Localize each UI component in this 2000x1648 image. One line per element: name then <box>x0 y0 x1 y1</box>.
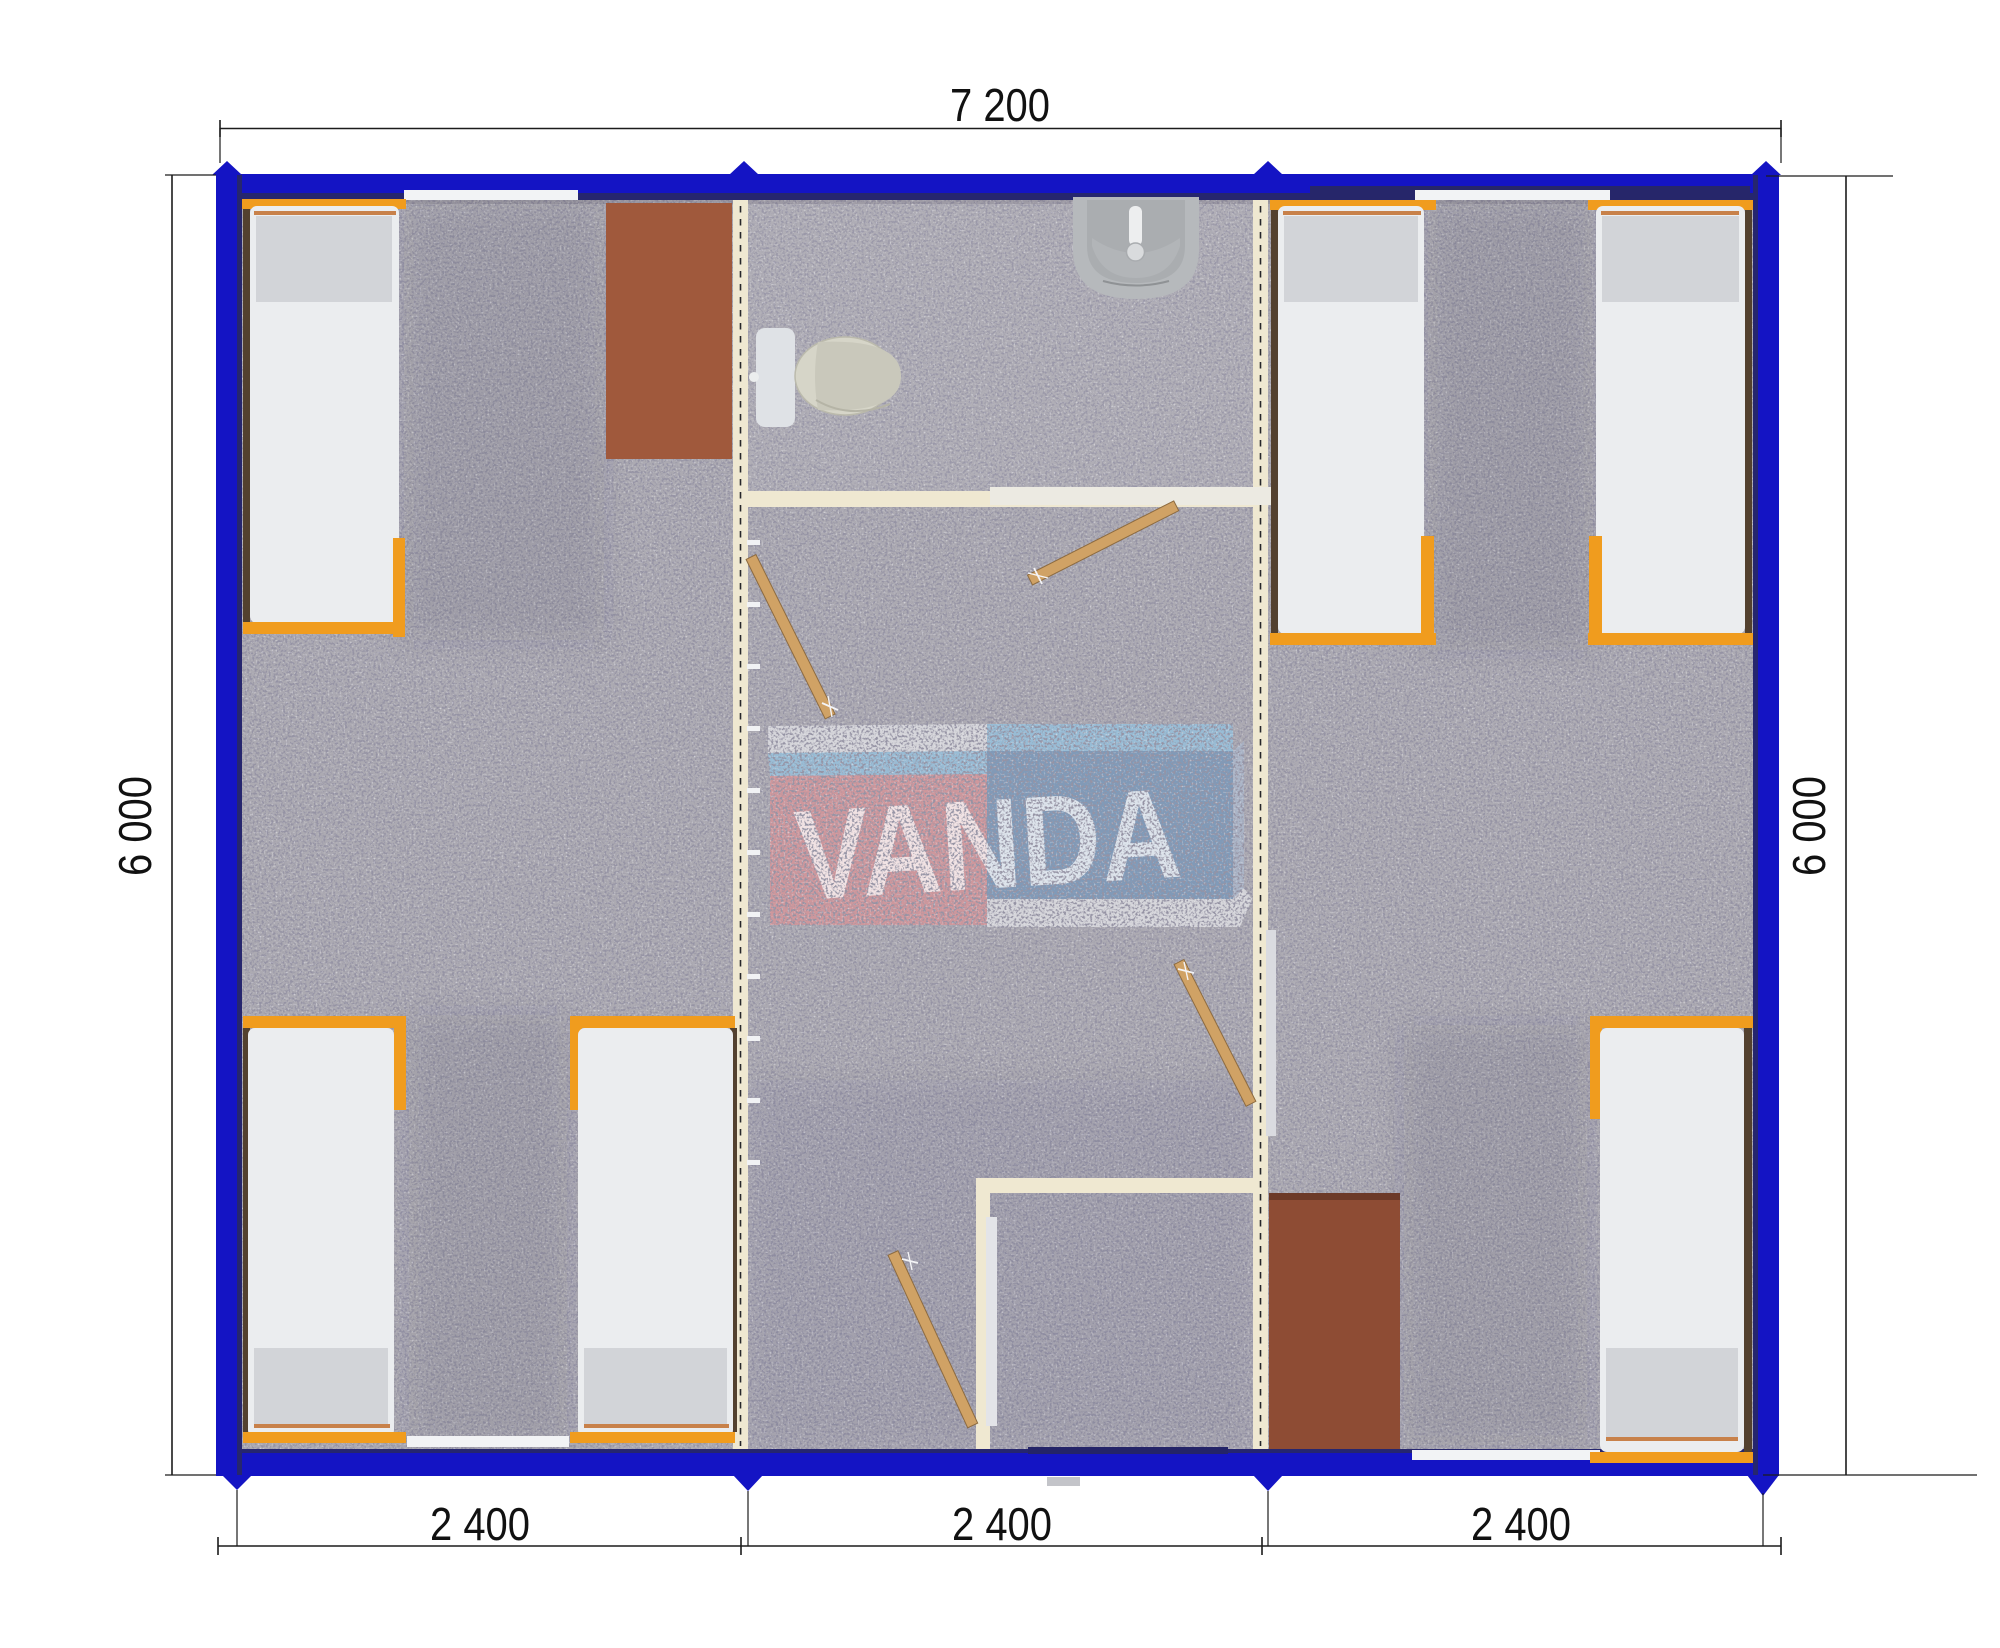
svg-text:2 400: 2 400 <box>952 1498 1052 1550</box>
svg-text:6 000: 6 000 <box>1783 776 1835 876</box>
svg-text:2 400: 2 400 <box>430 1498 530 1550</box>
svg-text:2 400: 2 400 <box>1471 1498 1571 1550</box>
svg-text:6 000: 6 000 <box>109 776 161 876</box>
svg-text:7 200: 7 200 <box>950 79 1050 131</box>
